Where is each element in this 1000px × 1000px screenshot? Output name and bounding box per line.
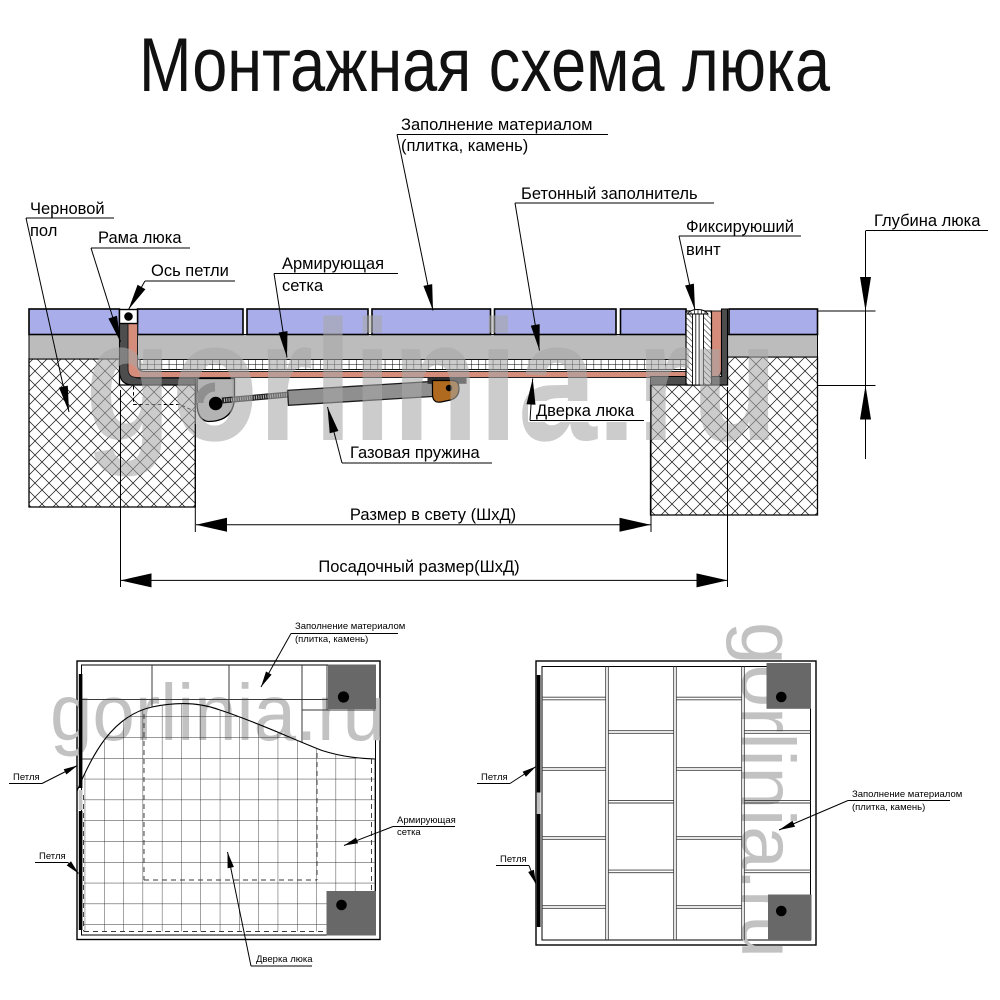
svg-text:Петля: Петля	[13, 772, 40, 783]
svg-text:Заполнение материалом: Заполнение материалом	[852, 789, 962, 800]
svg-text:пол: пол	[30, 222, 57, 240]
svg-text:Черновой: Черновой	[30, 200, 105, 218]
svg-text:Петля: Петля	[481, 772, 508, 783]
svg-text:(плитка, камень): (плитка, камень)	[295, 634, 368, 645]
svg-text:(плитка, камень): (плитка, камень)	[852, 802, 925, 813]
svg-text:Армирующая: Армирующая	[282, 255, 384, 273]
svg-text:сетка: сетка	[397, 827, 421, 838]
svg-text:винт: винт	[686, 241, 721, 259]
svg-text:Ось петли: Ось петли	[151, 262, 229, 280]
svg-text:Фиксируюший: Фиксируюший	[686, 218, 794, 236]
svg-text:Дверка люка: Дверка люка	[536, 402, 635, 420]
svg-text:сетка: сетка	[282, 277, 324, 295]
svg-text:Размер в свету (ШхД): Размер в свету (ШхД)	[350, 506, 516, 524]
svg-text:Петля: Петля	[39, 851, 66, 862]
svg-text:Армирующая: Армирующая	[397, 815, 456, 826]
svg-text:Монтажная схема люка: Монтажная схема люка	[139, 23, 831, 108]
svg-text:Заполнение материалом: Заполнение материалом	[295, 621, 405, 632]
svg-text:Бетонный заполнитель: Бетонный заполнитель	[521, 185, 698, 203]
svg-text:Глубина люка: Глубина люка	[874, 212, 981, 230]
svg-text:Дверка люка: Дверка люка	[256, 954, 313, 965]
svg-text:Петля: Петля	[500, 854, 527, 865]
svg-text:(плитка, камень): (плитка, камень)	[401, 137, 528, 155]
svg-text:Посадочный размер(ШхД): Посадочный размер(ШхД)	[318, 558, 519, 576]
svg-text:Рама люка: Рама люка	[98, 229, 182, 247]
svg-text:Заполнение материалом: Заполнение материалом	[401, 116, 593, 134]
svg-text:Газовая пружина: Газовая пружина	[350, 444, 481, 462]
